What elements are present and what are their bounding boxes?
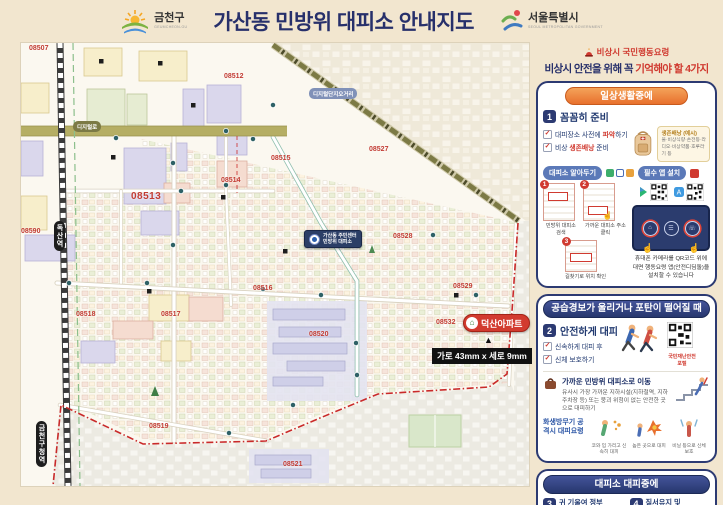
googleplay-qr [639,183,668,201]
cbr-illustration-cover-mouth [595,418,623,438]
backpack-caption-title: 생존배낭 (예시) [661,129,706,137]
dimension-arrow-icon: ▲ [484,336,493,345]
cbr-caption-3: 비닐 등으로 신체 보호 [671,444,707,456]
subbanner-install-apps: 필수 앱 설치 [638,166,686,180]
community-center-badge: 가산동 주민센터민방위 대피소 [304,230,362,248]
pointer-hand-icon: ☝ [642,243,653,254]
seoul-emblem-icon [500,8,524,34]
office-emblem-icon [309,234,320,245]
shelter-item-3: 3 귀 기울여 정부 안내방송 잘 듣기 [543,498,624,505]
qr-code-icon [667,322,693,348]
road-label: 디지털단지오거리 [309,88,357,99]
station-label-독산역: 독산역 [54,221,65,251]
road-label: 디지털로 [73,121,101,132]
check-survival-bag: ✓ 비상 생존배낭 준비 [543,142,628,152]
underground-stairs-illustration [674,376,710,402]
app-step3-screenshot: 3 [565,240,597,272]
backpack-caption-box: 생존배낭 (예시) 물·비상식량·손전등·라디오·비상약품·호루라기 등 [657,126,710,161]
step-number-1: 1 [543,110,556,123]
step3-caption: 길찾기로 위치 확인 [565,274,606,281]
cbr-title: 화생방무기 공격시 대피요령 [543,418,587,437]
postal-code-08517: 08517 [161,311,180,318]
item4-text: 질서유지 및 상호배려하기 [646,498,689,505]
card-air-raid: 공습경보가 울리거나 포탄이 떨어질 때 2 안전하게 대피 ✓ 신속하게 대피… [536,294,717,464]
seoul-name: 서울특별시 [528,13,603,24]
shelter-marker-deoksan: ⌂덕산아파트 [463,314,530,332]
banner-air-raid: 공습경보가 울리거나 포탄이 떨어질 때 [543,300,710,318]
card-daily-life: 일상생활중에 1 꼼꼼히 준비 ✓ 대피장소 사전에 파악하기 ✓ 비상 생존배… [536,81,717,288]
siren-icon [584,48,594,57]
appstore-qr: A [674,183,704,201]
app-icon-green [606,169,614,177]
postal-code-08507: 08507 [29,45,48,52]
check-evacuate-fast: ✓ 신속하게 대피 후 [543,341,617,351]
action-guide-tag: 비상시 국민행동요령 [536,46,717,58]
marker-dimension-label: 가로 43mm x 세로 9mm [432,348,532,364]
step-number-2: 2 [543,324,556,337]
shelter-icon: ⌂ [466,317,478,329]
qr-caption: 국민재난안전포털 [667,354,697,367]
banner-in-shelter: 대피소 대피중에 [543,475,710,493]
step1-caption: 민방위 대피소 검색 [543,223,579,237]
app-store-icon: A [674,187,684,197]
postal-code-08528: 08528 [393,233,412,240]
item-title-prepare: 꼼꼼히 준비 [560,109,609,124]
geumcheon-logo: 금천구 GEUMCHEON-GU [120,8,187,35]
cbr-caption-1: 코와 입 가리고 신속히 대피 [591,444,627,456]
item-title-evacuate: 안전하게 대피 [560,323,618,338]
postal-code-08512: 08512 [224,73,243,80]
postal-code-08521: 08521 [283,461,302,468]
checkbox-icon: ✓ [543,355,552,364]
app-button-alert: ☏ [685,221,700,236]
subbanner-know-shelters: 대피소 알아두기 [543,166,602,180]
cbr-caption-2: 높은 곳으로 대피 [631,444,667,450]
postal-code-08529: 08529 [453,283,472,290]
app-icon-amber [626,169,634,177]
shelter-marker-label: 덕산아파트 [481,317,522,330]
pointer-hand-icon: ☝ [689,243,700,254]
check-shelter-location: ✓ 대피장소 사전에 파악하기 [543,129,628,139]
running-people-illustration [620,322,664,356]
checkbox-icon: ✓ [543,130,552,139]
orderly-people-illustration [691,498,710,505]
item3-text: 귀 기울여 정부 안내방송 잘 듣기 [559,498,606,505]
step2-caption: 가까운 대피소 주소 클릭 [583,223,628,237]
safety-app-icon [690,169,699,178]
qr-code-icon [686,183,704,201]
postal-code-08516: 08516 [253,285,272,292]
seoul-sub: SEOUL METROPOLITAN GOVERNMENT [528,26,603,30]
check-protect-body: ✓ 신체 보호하기 [543,354,617,364]
emergency-app-screenshot: ⌂ ☰ ☏ ☝ ☝ [632,205,710,251]
postal-code-08513: 08513 [131,191,161,202]
cbr-illustration-protect [675,418,703,438]
map-annotations: 0850708512085130851408515085160851708518… [21,43,529,486]
postal-code-08590: 08590 [21,228,40,235]
postal-code-08520: 08520 [309,331,328,338]
app-button-shelter: ⌂ [643,221,658,236]
geumcheon-emblem-icon [120,8,150,35]
cbr-step-2: 높은 곳으로 대피 [631,418,667,450]
panel-title: 비상시 안전을 위해 꼭 기억해야 할 4가지 [536,61,717,76]
header: 금천구 GEUMCHEON-GU 가산동 민방위 대피소 안내지도 서울특별시 … [0,0,723,42]
card-in-shelter: 대피소 대피중에 3 귀 기울여 정부 안내방송 잘 듣기 4 질서유지 및 [536,469,717,505]
move-title: 가까운 민방위 대피소로 이동 [562,376,670,387]
google-play-icon [639,187,648,197]
info-panel: 비상시 국민행동요령 비상시 안전을 위해 꼭 기억해야 할 4가지 일상생활중… [536,46,717,505]
survival-backpack-illustration [631,126,655,162]
tag-label: 비상시 국민행동요령 [597,46,670,58]
move-body: 유사시 가장 가까운 지하시설(지하철역, 지하주차장 등) 또는 붕괴 위험이… [562,389,670,414]
checkbox-icon: ✓ [543,342,552,351]
listening-radio-illustration [609,498,624,505]
qr-code-icon [650,183,668,201]
qr-note: 휴대폰 카메라를 QR코드 위에 대면 행동요령 앱(안전디딤돌)을 설치할 수… [632,255,710,280]
geumcheon-sub: GEUMCHEON-GU [154,26,187,30]
cbr-illustration-explosion [635,418,663,438]
cbr-step-1: 코와 입 가리고 신속히 대피 [591,418,627,456]
postal-code-08515: 08515 [271,155,290,162]
app-step1-screenshot: 1 [543,183,575,221]
app-icon-white [616,169,624,177]
badge-line2: 민방위 대피소 [323,239,357,245]
shelter-app-icons [606,169,634,177]
cbr-step-3: 비닐 등으로 신체 보호 [671,418,707,456]
page-title: 가산동 민방위 대피소 안내지도 [213,6,474,36]
panel-title-main: 비상시 안전을 위해 꼭 [544,63,635,75]
step-number-4: 4 [630,498,643,505]
checkbox-icon: ✓ [543,143,552,152]
svg-text:A: A [676,190,681,197]
app-button-guide: ☰ [664,221,679,236]
panel-title-highlight: 기억해야 할 4가지 [635,63,708,75]
backpack-caption-items: 물·비상식량·손전등·라디오·비상약품·호루라기 등 [661,138,706,158]
postal-code-08532: 08532 [436,319,455,326]
postal-code-08519: 08519 [149,423,168,430]
shelter-map: 0850708512085130851408515085160851708518… [20,42,530,487]
geumcheon-name: 금천구 [154,13,187,24]
postal-code-08514: 08514 [221,177,240,184]
postal-code-08518: 08518 [76,311,95,318]
station-label-금천구청역: 금천구청역 [36,421,47,467]
seoul-logo: 서울특별시 SEOUL METROPOLITAN GOVERNMENT [500,8,603,34]
banner-daily: 일상생활중에 [565,87,687,105]
step-number-3: 3 [543,498,556,505]
poster-page: 금천구 GEUMCHEON-GU 가산동 민방위 대피소 안내지도 서울특별시 … [0,0,723,505]
app-step2-screenshot: 2☝ [583,183,615,221]
postal-code-08527: 08527 [369,146,388,153]
go-bag-icon [543,376,558,390]
shelter-item-4: 4 질서유지 및 상호배려하기 [630,498,711,505]
